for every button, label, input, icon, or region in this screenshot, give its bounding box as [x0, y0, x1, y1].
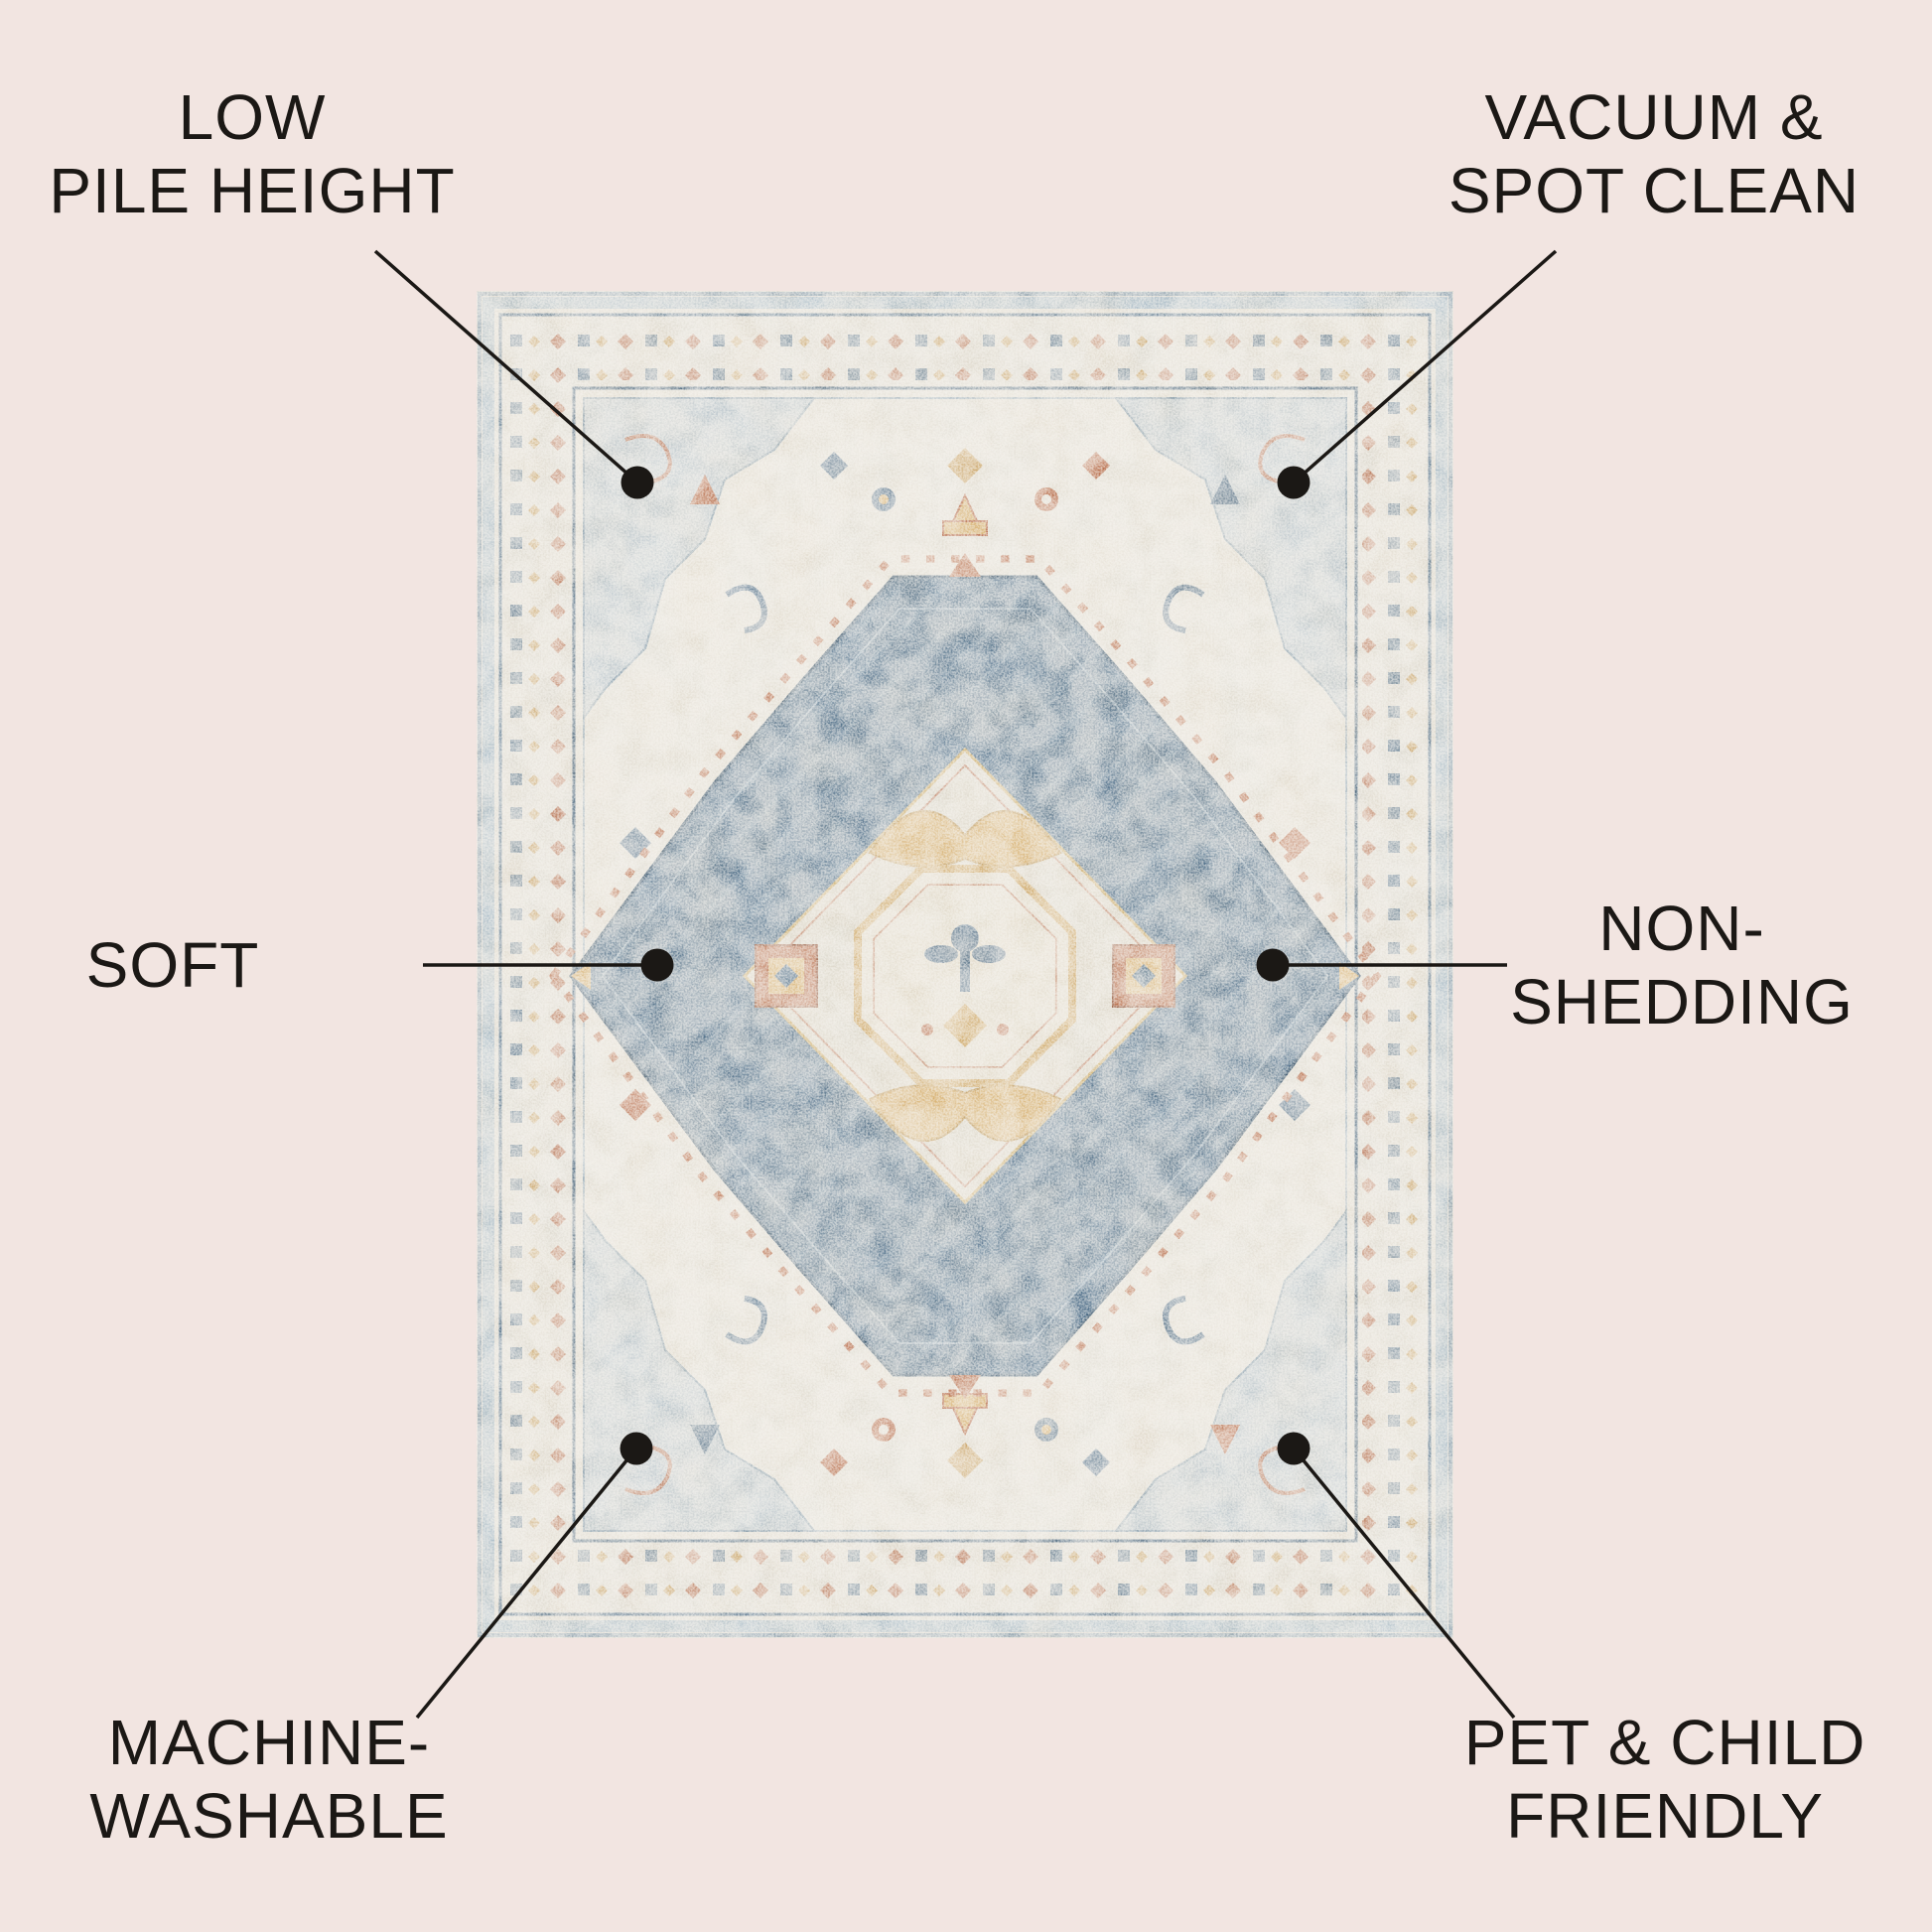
feature-label-line: FRIENDLY [1464, 1779, 1866, 1853]
feature-label-non-shedding: NON- SHEDDING [1510, 892, 1854, 1038]
infographic-canvas: LOW PILE HEIGHT VACUUM & SPOT CLEAN SOFT… [0, 0, 1932, 1932]
feature-label-line: LOW [49, 80, 455, 154]
rug-illustration [477, 291, 1453, 1638]
feature-label-pet-child-friendly: PET & CHILD FRIENDLY [1464, 1706, 1866, 1853]
feature-label-vacuum-spot-clean: VACUUM & SPOT CLEAN [1449, 80, 1860, 227]
feature-label-line: WASHABLE [89, 1779, 448, 1853]
feature-label-machine-washable: MACHINE- WASHABLE [89, 1706, 448, 1853]
feature-label-line: SPOT CLEAN [1449, 154, 1860, 227]
feature-label-line: SHEDDING [1510, 965, 1854, 1038]
feature-label-line: PET & CHILD [1464, 1706, 1866, 1779]
feature-label-line: NON- [1510, 892, 1854, 965]
feature-label-soft: SOFT [86, 928, 260, 1002]
feature-label-line: PILE HEIGHT [49, 154, 455, 227]
feature-label-line: MACHINE- [89, 1706, 448, 1779]
feature-label-low-pile-height: LOW PILE HEIGHT [49, 80, 455, 227]
rug-image [477, 291, 1453, 1638]
feature-label-line: SOFT [86, 928, 260, 1002]
feature-label-line: VACUUM & [1449, 80, 1860, 154]
